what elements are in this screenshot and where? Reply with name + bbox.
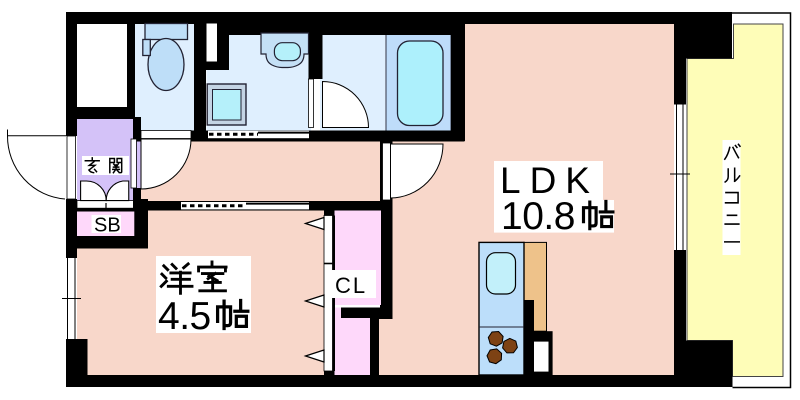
svg-text:4.5: 4.5 (158, 295, 211, 338)
svg-text:10.8: 10.8 (501, 195, 575, 238)
svg-text:SB: SB (94, 215, 121, 237)
svg-text:CL: CL (335, 273, 367, 298)
